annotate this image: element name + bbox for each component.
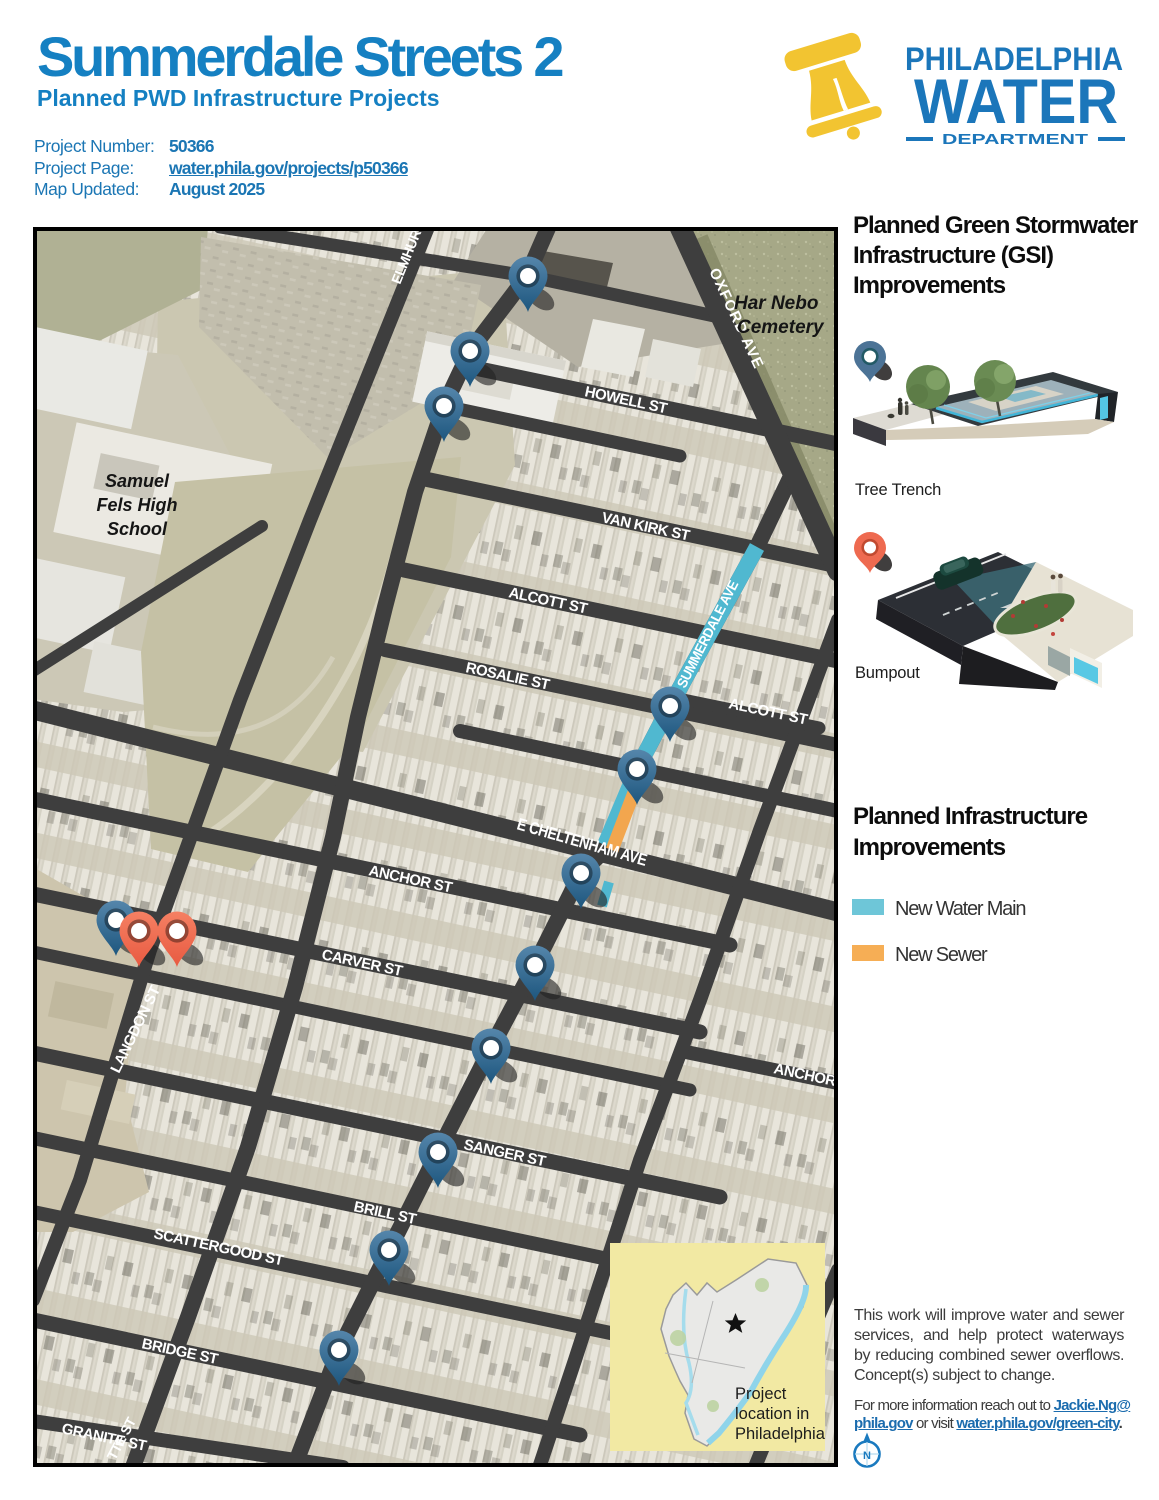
svg-text:Fels High: Fels High bbox=[96, 495, 177, 515]
svg-text:Har Nebo: Har Nebo bbox=[734, 293, 818, 314]
svg-text:WATER: WATER bbox=[914, 67, 1118, 137]
svg-text:Project: Project bbox=[735, 1385, 787, 1403]
svg-text:Cemetery: Cemetery bbox=[737, 317, 825, 338]
svg-text:location in: location in bbox=[735, 1405, 809, 1423]
svg-text:DEPARTMENT: DEPARTMENT bbox=[942, 131, 1088, 148]
svg-text:Samuel: Samuel bbox=[105, 471, 170, 491]
svg-text:N: N bbox=[863, 1450, 871, 1462]
svg-text:Philadelphia: Philadelphia bbox=[735, 1425, 826, 1443]
svg-text:School: School bbox=[107, 519, 168, 539]
